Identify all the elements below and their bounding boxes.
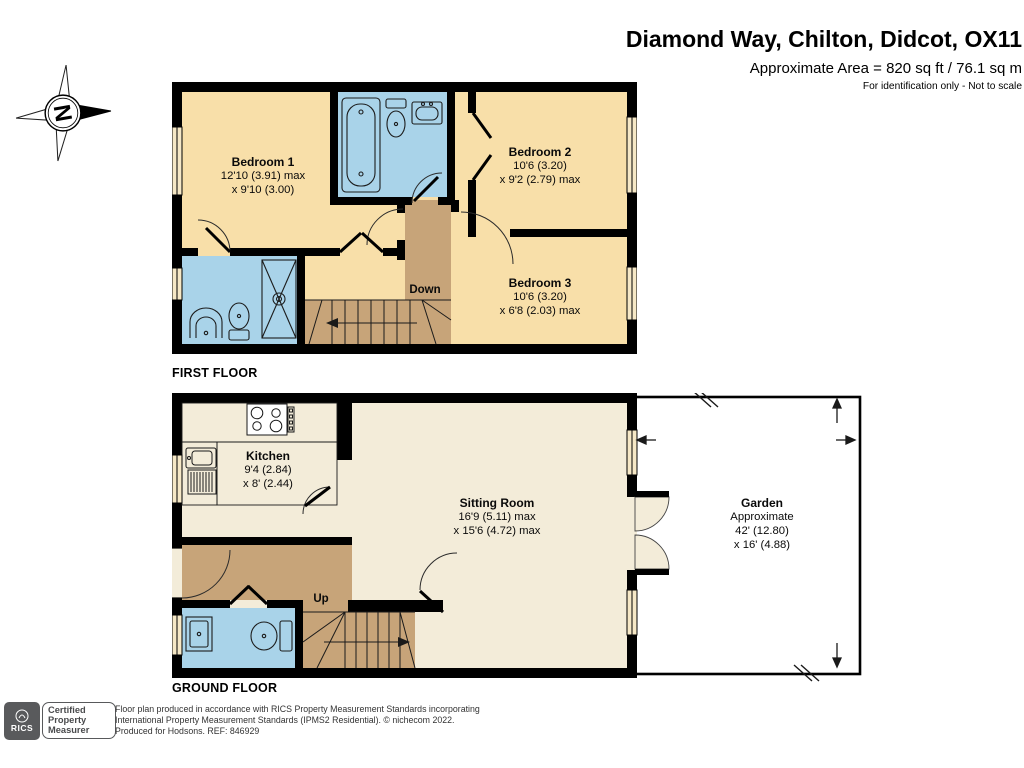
room-label-bedroom1: Bedroom 1 12'10 (3.91) max x 9'10 (3.00) xyxy=(183,155,343,197)
stairs-down-label: Down xyxy=(402,284,448,296)
compass-icon: N xyxy=(12,62,114,164)
room-label-garden: Garden Approximate 42' (12.80) x 16' (4.… xyxy=(692,496,832,552)
room-label-bedroom3: Bedroom 3 10'6 (3.20) x 6'8 (2.03) max xyxy=(460,276,620,318)
disclaimer-line-2: International Property Measurement Stand… xyxy=(115,715,480,726)
room-label-kitchen: Kitchen 9'4 (2.84) x 8' (2.44) xyxy=(198,449,338,491)
disclaimer-line-3: Produced for Hodsons. REF: 846929 xyxy=(115,726,480,737)
rics-logo-text: RICS xyxy=(11,724,33,733)
area-text: Approximate Area = 820 sq ft / 76.1 sq m xyxy=(750,60,1022,77)
rics-lion-icon xyxy=(14,709,30,723)
disclaimer-line-1: Floor plan produced in accordance with R… xyxy=(115,704,480,715)
page-title: Diamond Way, Chilton, Didcot, OX11 xyxy=(626,26,1022,53)
certified-property-measurer-badge: Certified Property Measurer xyxy=(42,702,116,739)
first-floor-title: FIRST FLOOR xyxy=(172,366,258,380)
ground-floor-title: GROUND FLOOR xyxy=(172,681,277,695)
rics-logo: RICS xyxy=(4,702,40,740)
floorplan-page: Diamond Way, Chilton, Didcot, OX11 Appro… xyxy=(0,0,1024,768)
disclaimer-text: Floor plan produced in accordance with R… xyxy=(115,704,480,737)
hallway-floor xyxy=(182,545,352,600)
room-label-bedroom2: Bedroom 2 10'6 (3.20) x 9'2 (2.79) max xyxy=(460,145,620,187)
front-door-opening xyxy=(172,548,182,598)
compass-svg: N xyxy=(12,62,114,164)
hob-icon xyxy=(247,404,294,435)
room-label-sitting-room: Sitting Room 16'9 (5.11) max x 15'6 (4.7… xyxy=(417,496,577,538)
stairs-up-label: Up xyxy=(299,593,343,605)
scale-note: For identification only - Not to scale xyxy=(863,81,1022,92)
